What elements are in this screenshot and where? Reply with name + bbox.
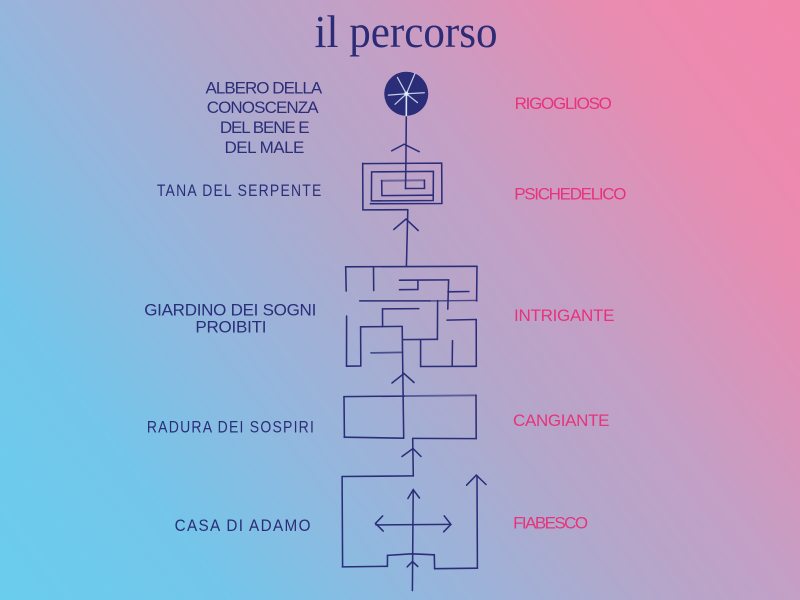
svg-text:PSICHEDELICO: PSICHEDELICO <box>514 185 628 204</box>
svg-text:DEL MALE: DEL MALE <box>225 138 306 157</box>
svg-text:CONOSCENZA: CONOSCENZA <box>207 98 320 117</box>
svg-text:RADURA DEI SOSPIRI: RADURA DEI SOSPIRI <box>147 418 315 437</box>
svg-text:CANGIANTE: CANGIANTE <box>513 411 611 430</box>
svg-text:il percorso: il percorso <box>315 6 498 57</box>
svg-text:DEL BENE E: DEL BENE E <box>220 118 311 137</box>
svg-text:TANA DEL SERPENTE: TANA DEL SERPENTE <box>157 181 323 200</box>
svg-text:PROIBITI: PROIBITI <box>195 318 268 337</box>
svg-text:CASA DI ADAMO: CASA DI ADAMO <box>175 516 312 535</box>
svg-text:INTRIGANTE: INTRIGANTE <box>514 306 616 325</box>
svg-text:FIABESCO: FIABESCO <box>513 514 590 533</box>
svg-text:RIGOGLIOSO: RIGOGLIOSO <box>515 94 614 113</box>
svg-text:ALBERO DELLA: ALBERO DELLA <box>206 78 324 97</box>
